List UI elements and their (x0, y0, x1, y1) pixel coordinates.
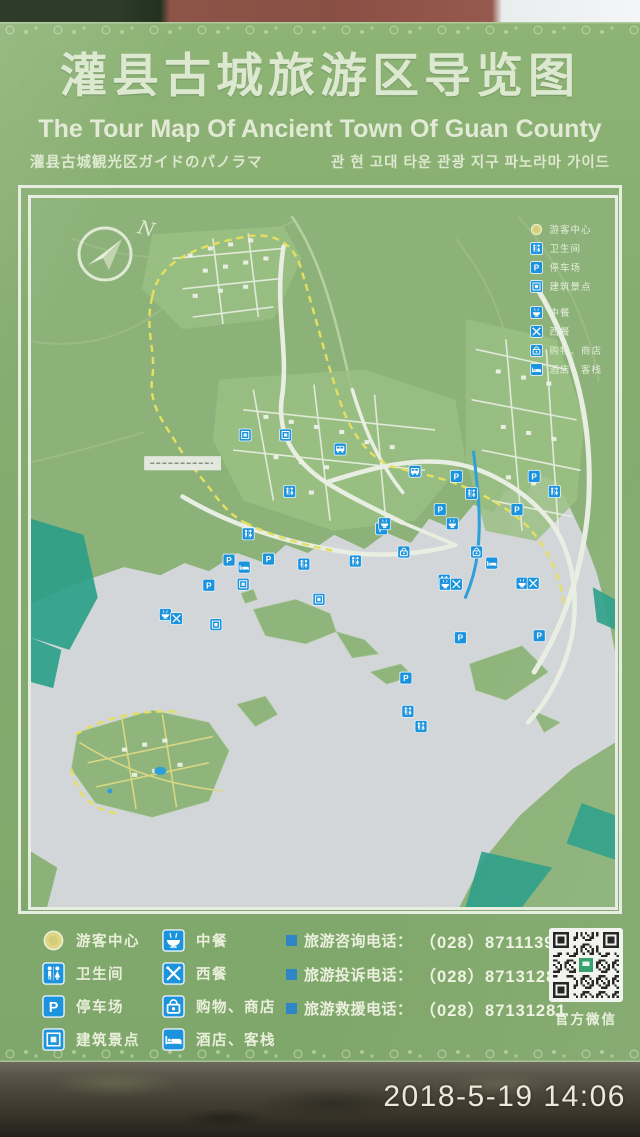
compass-icon (75, 222, 139, 286)
map-marker-cn-restaurant-icon (516, 577, 528, 589)
western-restaurant-icon (530, 325, 543, 338)
parking-icon (42, 995, 65, 1018)
map-marker-parking-icon (400, 672, 412, 684)
legend-item-parking: 停车场 (530, 260, 602, 274)
map-marker-toilet-icon (402, 705, 414, 717)
map-marker-bus-icon (334, 443, 346, 455)
map-marker-parking-icon (262, 553, 274, 565)
sign-subtitle-korean: 관 현 고대 타운 관광 지구 파노라마 가이드 (331, 151, 610, 172)
map-marker-cn-restaurant-icon (159, 609, 171, 621)
legend-item-toilet: 卫生间 (530, 241, 602, 255)
compass-north-label: N (136, 216, 157, 241)
legend-item-visitor-center: 游客中心 (42, 928, 140, 952)
attraction-icon (530, 280, 543, 293)
legend-item-western-restaurant: 西餐 (162, 961, 276, 985)
legend-item-toilet: 卫生间 (42, 961, 140, 985)
photo-background-bottom: 2018-5-19 14:06 (0, 1062, 640, 1137)
legend-item-chinese-restaurant: 中餐 (162, 928, 276, 952)
map-marker-toilet-icon (415, 720, 427, 732)
sign-title-chinese: 灌县古城旅游区导览图 (0, 46, 640, 108)
map-marker-cn-restaurant-icon (379, 518, 391, 530)
map-marker-parking-icon (454, 632, 466, 644)
legend-item-parking: 停车场 (42, 994, 140, 1018)
map-marker-parking-icon (203, 579, 215, 591)
legend-item-shop: 购物、商店 (162, 994, 276, 1018)
legend-item-visitor-center: 游客中心 (530, 222, 602, 236)
map-marker-shop-icon (471, 546, 483, 558)
toilet-icon (42, 962, 65, 985)
map-marker-attraction-icon (239, 429, 251, 441)
wechat-qr-code (549, 928, 623, 1002)
map-marker-hotel-icon (486, 557, 498, 569)
chinese-restaurant-icon (530, 306, 543, 319)
western-restaurant-icon (162, 962, 185, 985)
wechat-caption: 官方微信 (543, 1008, 629, 1028)
shop-icon (530, 344, 543, 357)
map-canvas: N 游客中心 卫生间 停车场 建筑景点 (28, 195, 618, 910)
sign-subtitle-japanese: 灌县古城観光区ガイドのパノラマ (30, 151, 263, 172)
map-marker-attraction-icon (237, 578, 249, 590)
map-marker-toilet-icon (548, 485, 560, 497)
map-marker-attraction-icon (210, 619, 222, 631)
sign-title-english: The Tour Map Of Ancient Town Of Guan Cou… (0, 115, 640, 144)
sign-subtitles: 灌县古城観光区ガイドのパノラマ 관 현 고대 타운 관광 지구 파노라마 가이드 (0, 151, 640, 172)
map-marker-parking-icon (533, 630, 545, 642)
decorative-scroll-border-top (0, 22, 640, 37)
legend-item-western-restaurant: 西餐 (530, 324, 602, 338)
parking-icon (530, 261, 543, 274)
footer-legend-column-2: 中餐 西餐 购物、商店 酒店、客栈 (162, 928, 276, 1051)
map-marker-w-restaurant-icon (450, 578, 462, 590)
shop-icon (162, 995, 185, 1018)
town-map-drawing (31, 198, 615, 907)
map-marker-w-restaurant-icon (527, 577, 539, 589)
contact-phone-list: 旅游咨询电话： （028）87111399 旅游投诉电话： （028）87131… (286, 930, 566, 1019)
contact-row-rescue: 旅游救援电话： （028）87131281 (286, 998, 566, 1019)
chinese-restaurant-icon (162, 929, 185, 952)
map-marker-toilet-icon (284, 485, 296, 497)
square-bullet-icon (286, 969, 297, 980)
map-marker-bus-icon (409, 465, 421, 477)
footer-legend-column-1: 游客中心 卫生间 停车场 建筑景点 (42, 928, 140, 1051)
map-marker-parking-icon (450, 470, 462, 482)
contact-row-consult: 旅游咨询电话： （028）87111399 (286, 930, 566, 951)
legend-item-attraction: 建筑景点 (530, 279, 602, 293)
map-marker-cn-restaurant-icon (446, 518, 458, 530)
square-bullet-icon (286, 935, 297, 946)
map-legend: 游客中心 卫生间 停车场 建筑景点 中餐 (530, 222, 602, 376)
map-marker-hotel-icon (238, 561, 250, 573)
attraction-icon (42, 1028, 65, 1051)
map-marker-parking-icon (434, 504, 446, 516)
visitor-center-icon (42, 929, 65, 952)
map-marker-toilet-icon (298, 558, 310, 570)
illegible-label (144, 456, 221, 470)
legend-item-chinese-restaurant: 中餐 (530, 305, 602, 319)
legend-item-hotel: 酒店、客栈 (530, 362, 602, 376)
map-marker-parking-icon (511, 504, 523, 516)
hotel-icon (162, 1028, 185, 1051)
map-panel-frame: N 游客中心 卫生间 停车场 建筑景点 (18, 185, 622, 914)
map-marker-shop-icon (398, 546, 410, 558)
legend-item-attraction: 建筑景点 (42, 1027, 140, 1051)
map-marker-parking-icon (528, 470, 540, 482)
contact-row-complaint: 旅游投诉电话： （028）87131281 (286, 964, 566, 985)
qr-code-image (553, 932, 619, 998)
legend-item-shop: 购物、商店 (530, 343, 602, 357)
sign-board: 灌县古城旅游区导览图 The Tour Map Of Ancient Town … (0, 22, 640, 1062)
map-marker-attraction-icon (280, 429, 292, 441)
map-marker-attraction-icon (313, 593, 325, 605)
hotel-icon (530, 363, 543, 376)
map-marker-cn-restaurant-icon (439, 578, 451, 590)
small-pond (107, 788, 112, 793)
legend-item-hotel: 酒店、客栈 (162, 1027, 276, 1051)
square-bullet-icon (286, 1003, 297, 1014)
toilet-icon (530, 242, 543, 255)
map-marker-parking-icon (223, 554, 235, 566)
pond (154, 767, 166, 775)
photo-of-map-sign: { "header": { "title_zh": "灌县古城旅游区导览图", … (0, 0, 640, 1137)
compass: N (75, 222, 161, 294)
map-marker-toilet-icon (466, 487, 478, 499)
map-marker-toilet-icon (242, 528, 254, 540)
visitor-center-icon (530, 223, 543, 236)
camera-timestamp: 2018-5-19 14:06 (383, 1080, 626, 1114)
map-marker-toilet-icon (349, 555, 361, 567)
map-marker-w-restaurant-icon (170, 613, 182, 625)
